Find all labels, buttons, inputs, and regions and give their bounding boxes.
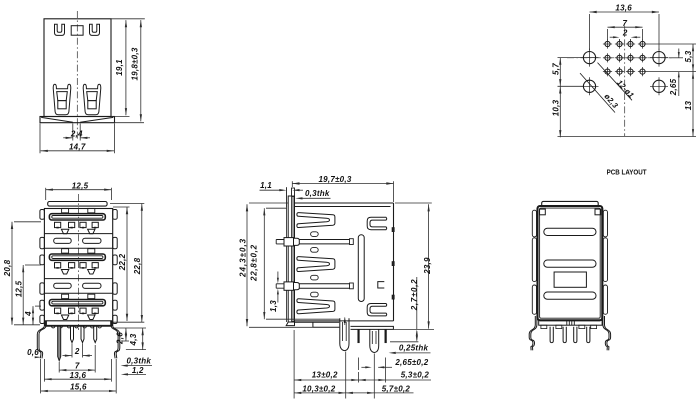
svg-text:2,65±0,2: 2,65±0,2: [394, 358, 428, 367]
svg-text:0,25thk: 0,25thk: [399, 343, 429, 352]
svg-text:15,6: 15,6: [70, 383, 87, 392]
svg-text:2,4: 2,4: [70, 129, 83, 138]
svg-text:13,6: 13,6: [70, 371, 87, 380]
svg-text:5,7±0,2: 5,7±0,2: [382, 384, 411, 393]
svg-text:12-ø1: 12-ø1: [615, 78, 636, 100]
svg-text:19,7±0,3: 19,7±0,3: [318, 175, 351, 184]
svg-text:0,3thk: 0,3thk: [305, 189, 330, 198]
svg-text:10,3: 10,3: [551, 99, 560, 116]
svg-text:22,2: 22,2: [118, 253, 127, 271]
svg-text:10,3±0,2: 10,3±0,2: [302, 384, 335, 393]
svg-text:PCB LAYOUT: PCB LAYOUT: [607, 169, 648, 177]
svg-text:13±0,2: 13±0,2: [312, 370, 338, 379]
svg-text:22,8±0,2: 22,8±0,2: [250, 244, 259, 282]
svg-text:1,3: 1,3: [269, 300, 278, 312]
svg-text:5,7: 5,7: [551, 63, 560, 75]
svg-text:1,1: 1,1: [260, 181, 272, 190]
svg-text:7: 7: [75, 362, 80, 371]
svg-text:0,6: 0,6: [27, 348, 39, 357]
svg-text:22,8: 22,8: [133, 257, 142, 275]
svg-text:20,8: 20,8: [3, 259, 12, 277]
svg-text:24,3±0,3: 24,3±0,3: [239, 238, 248, 278]
svg-text:4,3: 4,3: [129, 333, 138, 346]
svg-text:4: 4: [24, 311, 33, 317]
svg-text:7: 7: [622, 19, 627, 28]
svg-text:0,3thk: 0,3thk: [126, 356, 151, 365]
svg-text:2,6: 2,6: [115, 332, 124, 345]
svg-text:2: 2: [622, 28, 628, 37]
svg-text:13,6: 13,6: [615, 4, 632, 13]
svg-text:23,9: 23,9: [423, 257, 432, 275]
svg-text:5,3±0,2: 5,3±0,2: [401, 370, 430, 379]
svg-text:19,1: 19,1: [115, 59, 124, 76]
svg-text:12,5: 12,5: [72, 181, 89, 190]
svg-text:5,3: 5,3: [684, 50, 693, 62]
svg-text:19,8±0,3: 19,8±0,3: [131, 47, 140, 80]
svg-text:2,65: 2,65: [669, 78, 678, 96]
svg-text:2: 2: [74, 347, 80, 356]
svg-text:14,7: 14,7: [69, 142, 86, 151]
svg-text:13: 13: [684, 101, 693, 111]
svg-text:12,5: 12,5: [14, 280, 23, 297]
svg-text:2,7±0,2: 2,7±0,2: [410, 279, 419, 312]
svg-text:1,2: 1,2: [132, 366, 144, 375]
